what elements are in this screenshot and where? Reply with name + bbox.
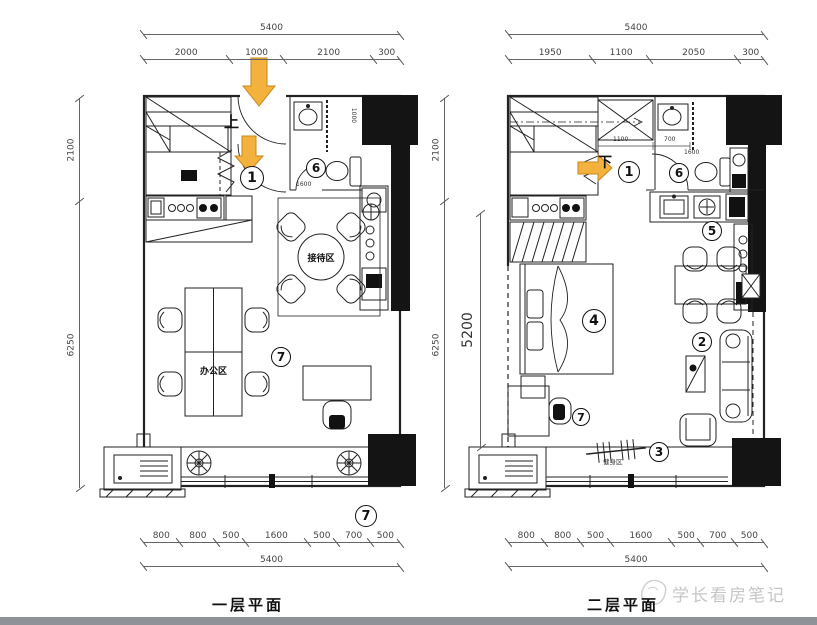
marker-bed: 4: [582, 309, 606, 333]
sofa: [720, 330, 752, 422]
chair: [245, 372, 269, 396]
plan2-dim-700: 700: [664, 136, 675, 143]
marker-sofa: 2: [692, 332, 712, 352]
plan2-counter-wardrobe: [510, 196, 586, 262]
plant-icon: [187, 451, 211, 475]
plan2-dim-left: 21006250: [429, 98, 445, 488]
chair: [245, 308, 269, 332]
footer-bar: [0, 617, 817, 625]
inner-dim-lines: [598, 142, 690, 150]
toilet: [326, 162, 348, 181]
plan2-title: 二层平面: [568, 594, 678, 615]
floorplan-page: 5400 200010002100300 21006250 8008005001…: [0, 0, 817, 625]
plan1-dim-top-segments: 200010002100300: [143, 45, 400, 60]
office-area-label: 办公区: [191, 364, 236, 377]
dining-table: [675, 266, 746, 304]
plan1-dim-bottom-total: 5400: [143, 552, 400, 567]
plan2-living: [680, 330, 752, 446]
pillow: [527, 290, 543, 318]
plan1-title: 一层平面: [193, 594, 303, 615]
armchair: [680, 414, 716, 446]
watermark-text: 学长看房笔记: [672, 581, 786, 606]
toilet-tank: [720, 158, 730, 186]
plan2-group: [465, 95, 782, 497]
plan1-stairs: [146, 97, 234, 195]
plan2-kitchen: [650, 192, 752, 310]
stair-down-label: 下: [598, 152, 612, 172]
marker-balcony: 7: [355, 505, 377, 527]
plan1-dim-1000: 1000: [350, 108, 357, 123]
ac-unit: [104, 447, 181, 490]
marker-toilet-2: 6: [669, 163, 689, 183]
toilet: [695, 163, 717, 182]
plan2-dining: [675, 247, 760, 323]
fitness-area-label: 健身区: [603, 456, 623, 466]
shoe-mat: [181, 170, 197, 181]
marker-entry-2: 1: [618, 161, 640, 183]
chair: [717, 247, 741, 271]
marker-office: 7: [271, 347, 291, 367]
plan1-dim-top-total: 5400: [143, 20, 400, 35]
ac-unit: [469, 447, 546, 490]
plan1-office: [158, 288, 371, 429]
stair-up-label: 上: [224, 111, 239, 132]
plan2-dim-bottom-total: 5400: [508, 552, 764, 567]
chair: [158, 372, 182, 396]
chair: [158, 308, 182, 332]
entry-arrow-down-icon: [243, 58, 275, 106]
plan1-dim-left: 21006250: [64, 98, 80, 488]
plan1-balcony: [100, 434, 368, 497]
plan1-dim-1600: 1600: [296, 181, 311, 188]
reception-area-label: 接待区: [299, 251, 343, 264]
chair: [274, 210, 308, 244]
plan2-outer-wall: [508, 96, 764, 486]
marker-kitchen: 5: [702, 221, 722, 241]
plan2-dim-bottom-segments: 8008005001600500700500: [508, 528, 764, 543]
desk: [303, 366, 371, 400]
pillow: [527, 322, 543, 350]
chair: [334, 272, 368, 306]
marker-fitness: 3: [649, 442, 669, 462]
marker-desk: 7: [572, 408, 590, 426]
chair: [683, 299, 707, 323]
marker-toilet-1: 6: [306, 158, 326, 178]
plan2-dim-top-segments: 195011002050300: [508, 45, 764, 60]
plan2-dim-1100: 1100: [613, 136, 628, 143]
plan1-group: [100, 58, 418, 497]
washer: [733, 154, 745, 166]
folding-door: [218, 150, 234, 192]
marker-entry-1: 1: [240, 166, 264, 190]
plan2-dim-top-total: 5400: [508, 20, 764, 35]
chair: [334, 210, 368, 244]
desk: [508, 386, 549, 436]
nightstand: [521, 376, 545, 398]
plan1-wall-blocks: [362, 95, 418, 486]
plan1-dim-bottom-segments: 8008005001600500700500: [143, 528, 400, 543]
plan2-dim-inner-height: 5200: [455, 213, 481, 447]
toilet-tank: [350, 157, 361, 186]
chair: [274, 272, 308, 306]
plan2-dim-1600: 1600: [684, 149, 699, 156]
plant-icon: [337, 451, 361, 475]
plan1-kitchen: [146, 196, 252, 242]
chair: [683, 247, 707, 271]
plan2-balcony: [465, 434, 732, 497]
